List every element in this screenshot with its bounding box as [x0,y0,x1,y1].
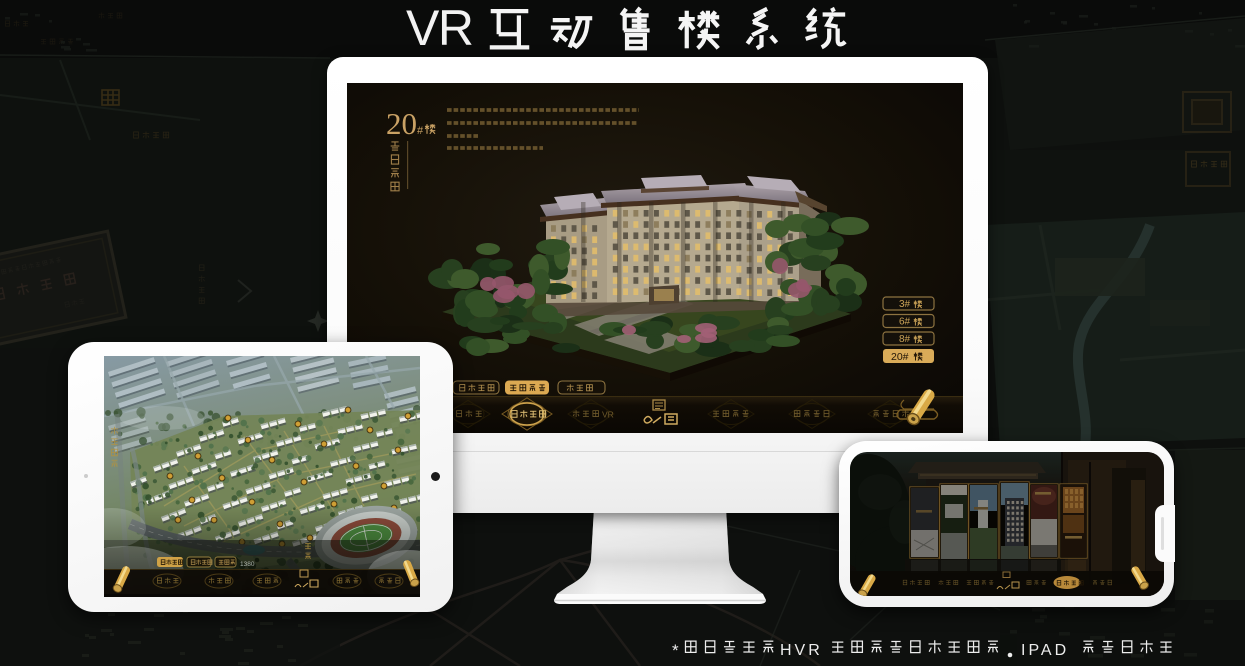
svg-text:*: * [672,641,679,660]
svg-text:3#: 3# [899,299,911,310]
svg-text:20#: 20# [891,351,909,363]
svg-text:20: 20 [386,106,417,141]
svg-text:IPAD: IPAD [1021,642,1069,659]
svg-text:1380: 1380 [240,561,255,568]
svg-text:8#: 8# [899,334,911,345]
svg-text:HVR: HVR [780,642,823,659]
svg-text:VR: VR [406,0,474,56]
svg-text:#: # [417,125,424,137]
svg-text:VR: VR [602,410,614,420]
svg-text:6#: 6# [899,317,911,328]
